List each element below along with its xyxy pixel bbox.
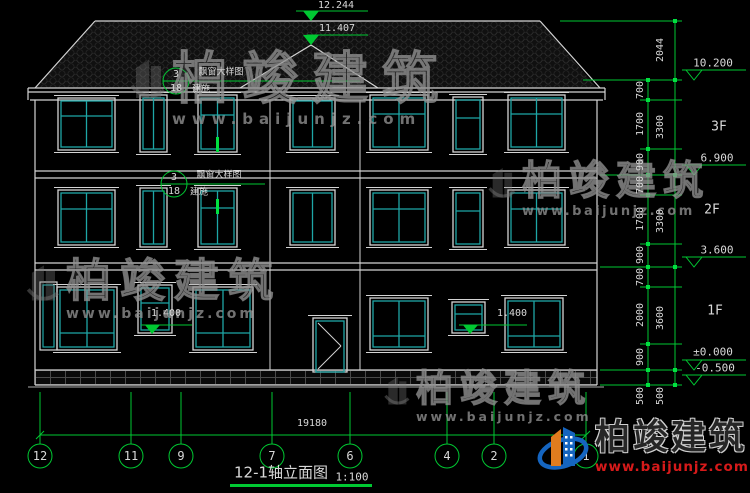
elevation-triangle: [686, 165, 702, 175]
floor-label: 3F: [711, 121, 727, 134]
dimension-value: 700: [636, 81, 646, 99]
elevation-value: 6.900: [700, 153, 733, 164]
overall-dimension: 19180: [297, 419, 327, 429]
window: [366, 93, 432, 153]
callout-sheet-number: 18: [170, 84, 182, 94]
top-elevation-value: 12.244: [318, 1, 354, 11]
window: [504, 93, 569, 153]
dimension-value: 900: [636, 153, 646, 171]
window: [53, 285, 121, 353]
elevation-value: ±0.000: [693, 347, 733, 358]
dimension-value: 2000: [636, 303, 646, 327]
window: [286, 188, 339, 248]
roof-hip-left: [35, 21, 95, 88]
dimension-value: 1700: [636, 112, 646, 136]
axis-label: 7: [268, 450, 275, 462]
elevation-triangle: [686, 70, 702, 80]
elevation-triangle: [303, 11, 319, 21]
title-underline: [230, 484, 372, 487]
drawing-scale: 1:100: [335, 472, 368, 483]
callout-label: 飘窗大样图: [198, 69, 243, 78]
dimension-value: 3600: [656, 306, 666, 330]
dimension-value: 3300: [656, 115, 666, 139]
axis-label: 6: [346, 450, 353, 462]
dimension-value: 1700: [636, 207, 646, 231]
window: [136, 186, 171, 250]
window: [286, 96, 339, 153]
leader-tick: [216, 199, 219, 214]
axis-label: 11: [124, 450, 138, 462]
roof-hip-right: [540, 21, 600, 88]
elevation-triangle: [303, 35, 319, 45]
sill-elevation-value: 1.400: [497, 309, 527, 319]
elevation-value: 10.200: [693, 58, 733, 69]
dimension-value: 3300: [656, 209, 666, 233]
gable-edge-right: [311, 45, 378, 88]
windows: [40, 93, 569, 353]
window: [501, 296, 567, 353]
dimension-value: 700: [636, 176, 646, 194]
brand-logo-text: 柏竣建筑: [595, 421, 749, 456]
window: [136, 93, 171, 155]
cad-elevation-drawing: 12.244 11.407 10.200 6.900 3.600 ±0.000 …: [0, 0, 750, 493]
elevation-value: 3.600: [700, 245, 733, 256]
sill-elevation-value: 1.400: [151, 309, 181, 319]
axis-label: 4: [443, 450, 450, 462]
callout-sheet-number: 18: [168, 187, 180, 197]
dimension-ticks: [646, 19, 677, 387]
callout-sublabel: 建施: [192, 86, 210, 95]
dimension-value: 500: [656, 387, 666, 405]
callout-detail-number: 3: [171, 173, 177, 183]
axis-label: 2: [490, 450, 497, 462]
elevation-value: -0.500: [695, 363, 735, 374]
window: [449, 95, 487, 155]
floor-label: 2F: [704, 204, 720, 217]
dimension-value: 500: [636, 387, 646, 405]
entrance-door: [308, 316, 352, 373]
callout-label: 飘窗大样图: [196, 172, 241, 181]
brand-logo: 柏竣建筑 www.baijunjz.com: [536, 418, 749, 478]
axis-label: 9: [177, 450, 184, 462]
floor-label: 1F: [707, 305, 723, 318]
axis-label: 12: [33, 450, 47, 462]
drawing-title: 12-1轴立面图: [234, 466, 328, 481]
window: [189, 285, 257, 353]
window: [40, 282, 57, 350]
dimension-value: 900: [636, 348, 646, 366]
leader-tick: [216, 137, 219, 152]
window: [366, 296, 432, 353]
dimension-value: 2044: [656, 38, 666, 62]
elevation-triangle: [686, 375, 702, 385]
brand-logo-icon: [536, 418, 590, 478]
dimension-value: 900: [636, 246, 646, 264]
window: [449, 188, 487, 250]
top-elevation-value: 11.407: [319, 24, 355, 34]
callout-detail-number: 3: [173, 70, 179, 80]
callout-sublabel: 建施: [190, 189, 208, 198]
dimension-value: 700: [636, 268, 646, 286]
window: [366, 188, 432, 248]
elevation-triangle: [686, 257, 702, 267]
brand-logo-url: www.baijunjz.com: [595, 459, 749, 475]
window: [504, 188, 569, 248]
gable-edge-left: [240, 45, 311, 88]
window: [54, 188, 119, 248]
window: [54, 96, 119, 153]
